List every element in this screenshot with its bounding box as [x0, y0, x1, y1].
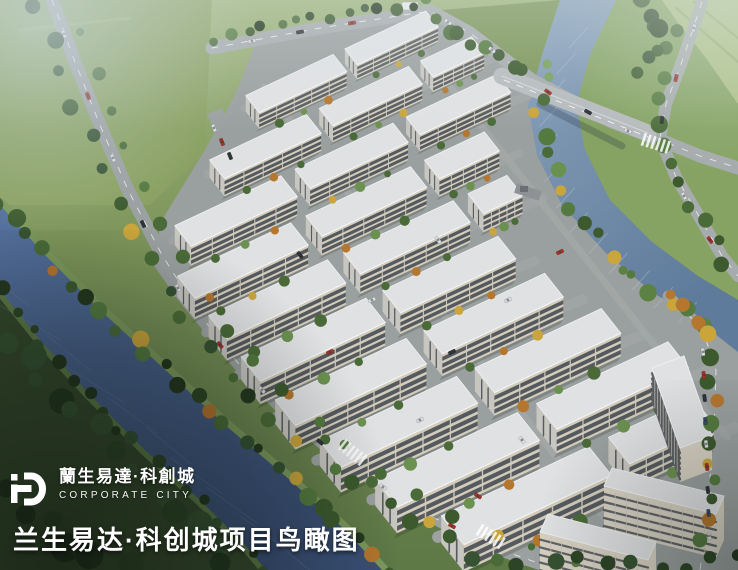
caption-title: 兰生易达·科创城项目鸟瞰图 — [13, 520, 360, 557]
brand-tagline: CORPORATE CITY — [59, 490, 196, 501]
rendering-canvas: 蘭生易達·科創城 CORPORATE CITY 兰生易达·科创城项目鸟瞰图 — [0, 0, 738, 570]
logo-mark-icon — [10, 468, 50, 506]
brand-lockup: 蘭生易達·科創城 CORPORATE CITY — [10, 466, 196, 506]
brand-name: 蘭生易達·科創城 — [59, 466, 196, 487]
